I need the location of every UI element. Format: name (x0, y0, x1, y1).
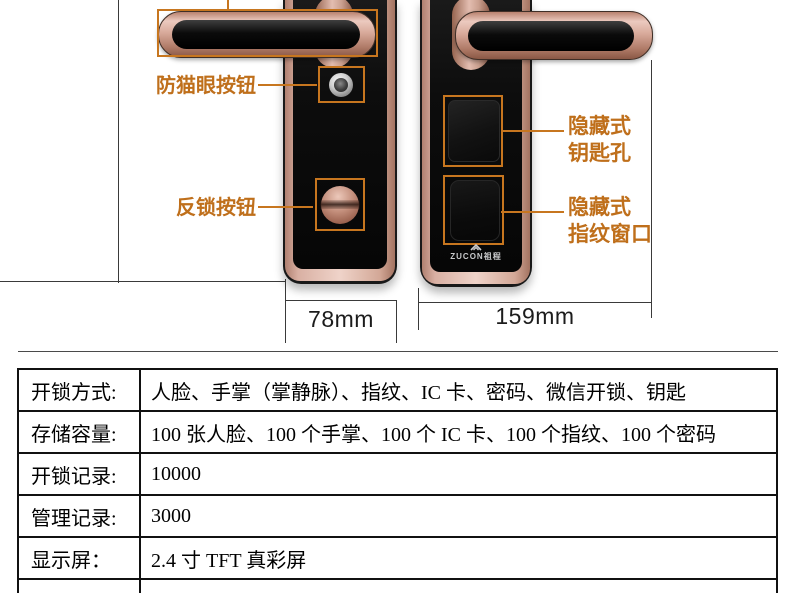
spec-label: 开锁方式: (18, 369, 140, 411)
peephole-button-center (334, 78, 348, 92)
deadbolt-leader-line (258, 206, 313, 208)
spec-value-empty (140, 579, 777, 593)
table-row-partial (18, 579, 777, 593)
keyhole-label-line1: 隐藏式 (568, 113, 631, 140)
height-extension-line (118, 0, 119, 283)
spec-value: 2.4 寸 TFT 真彩屏 (140, 537, 777, 579)
dimension-line (285, 300, 397, 301)
spec-value: 100 张人脸、100 个手掌、100 个 IC 卡、100 个指纹、100 个… (140, 411, 777, 453)
peephole-leader-line (258, 84, 317, 86)
fingerprint-label: 隐藏式 指纹窗口 (568, 194, 652, 248)
bottom-extension-line (0, 281, 285, 282)
keyhole-label: 隐藏式 钥匙孔 (568, 113, 631, 167)
table-row: 显示屏： 2.4 寸 TFT 真彩屏 (18, 537, 777, 579)
dimension-tick (651, 60, 652, 318)
deadbolt-knob (321, 186, 359, 224)
side-handle-inlay (468, 21, 634, 51)
table-row: 存储容量: 100 张人脸、100 个手掌、100 个 IC 卡、100 个指纹… (18, 411, 777, 453)
spec-label-empty (18, 579, 140, 593)
side-width-dimension: 159mm (418, 303, 652, 330)
spec-value: 3000 (140, 495, 777, 537)
handle-callout-line (227, 0, 229, 9)
spec-table: 开锁方式: 人脸、手掌（掌静脉）、指纹、IC 卡、密码、微信开锁、钥匙 存储容量… (17, 368, 778, 593)
fingerprint-label-line2: 指纹窗口 (568, 221, 652, 248)
hidden-keyhole-cover (448, 100, 500, 162)
hidden-fingerprint-window (450, 180, 500, 241)
spec-label: 显示屏： (18, 537, 140, 579)
handle-callout-box (157, 9, 378, 57)
table-row: 管理记录: 3000 (18, 495, 777, 537)
table-row: 开锁记录: 10000 (18, 453, 777, 495)
keyhole-label-line2: 钥匙孔 (568, 140, 631, 167)
table-top-separator (18, 351, 778, 352)
spec-label: 存储容量: (18, 411, 140, 453)
fingerprint-label-line1: 隐藏式 (568, 194, 652, 221)
keyhole-leader-line (501, 130, 564, 132)
deadbolt-knob-label: 反锁按钮 (170, 196, 256, 218)
brand-logo: ZUCON祖程 (420, 242, 532, 262)
front-width-dimension: 78mm (285, 306, 397, 333)
brand-logo-text: ZUCON祖程 (420, 251, 532, 262)
spec-label: 开锁记录: (18, 453, 140, 495)
spec-value: 人脸、手掌（掌静脉）、指纹、IC 卡、密码、微信开锁、钥匙 (140, 369, 777, 411)
table-row: 开锁方式: 人脸、手掌（掌静脉）、指纹、IC 卡、密码、微信开锁、钥匙 (18, 369, 777, 411)
spec-value: 10000 (140, 453, 777, 495)
peephole-button (329, 73, 353, 97)
chevron-up-icon (469, 242, 483, 251)
product-annotation-image: 防猫眼按钮 反锁按钮 78mm 隐藏式 钥匙孔 隐藏式 指纹窗口 ZUC (0, 0, 790, 593)
deadbolt-knob-slot (320, 200, 360, 209)
side-handle (455, 11, 653, 60)
fingerprint-leader-line (501, 211, 564, 213)
spec-label: 管理记录: (18, 495, 140, 537)
peephole-button-label: 防猫眼按钮 (150, 74, 256, 96)
